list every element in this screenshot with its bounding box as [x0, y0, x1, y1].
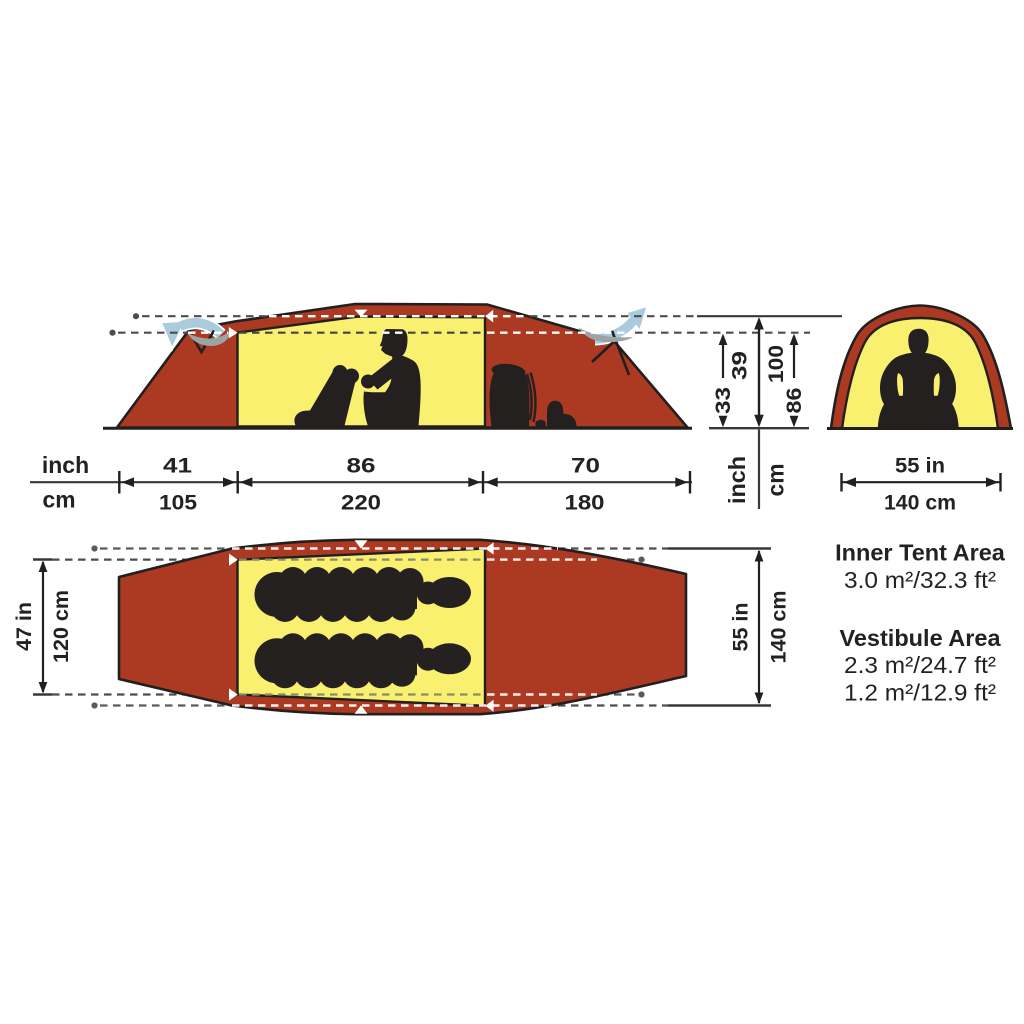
svg-text:Inner Tent Area: Inner Tent Area	[835, 540, 1006, 566]
svg-text:86: 86	[347, 454, 376, 478]
svg-text:Vestibule Area: Vestibule Area	[839, 625, 1001, 651]
svg-text:2.3 m²/24.7 ft²: 2.3 m²/24.7 ft²	[844, 652, 996, 678]
svg-text:cm: cm	[763, 464, 789, 497]
svg-text:55 in: 55 in	[729, 603, 753, 652]
svg-text:180: 180	[565, 491, 605, 515]
svg-text:cm: cm	[43, 487, 76, 513]
svg-text:1.2 m²/12.9 ft²: 1.2 m²/12.9 ft²	[844, 680, 996, 706]
svg-text:140 cm: 140 cm	[767, 591, 791, 664]
svg-text:140 cm: 140 cm	[884, 491, 956, 515]
svg-text:inch: inch	[724, 456, 750, 504]
svg-text:220: 220	[341, 491, 381, 515]
svg-text:105: 105	[159, 491, 197, 515]
svg-text:39: 39	[728, 351, 752, 380]
svg-text:3.0 m²/32.3 ft²: 3.0 m²/32.3 ft²	[844, 567, 996, 593]
svg-text:41: 41	[163, 454, 192, 478]
svg-text:inch: inch	[42, 452, 89, 478]
svg-text:70: 70	[571, 454, 600, 478]
svg-text:47 in: 47 in	[12, 602, 36, 651]
svg-text:33: 33	[711, 387, 735, 414]
svg-text:86: 86	[782, 387, 806, 413]
svg-text:55 in: 55 in	[895, 454, 945, 478]
svg-text:120 cm: 120 cm	[49, 590, 73, 663]
svg-text:100: 100	[764, 345, 788, 383]
